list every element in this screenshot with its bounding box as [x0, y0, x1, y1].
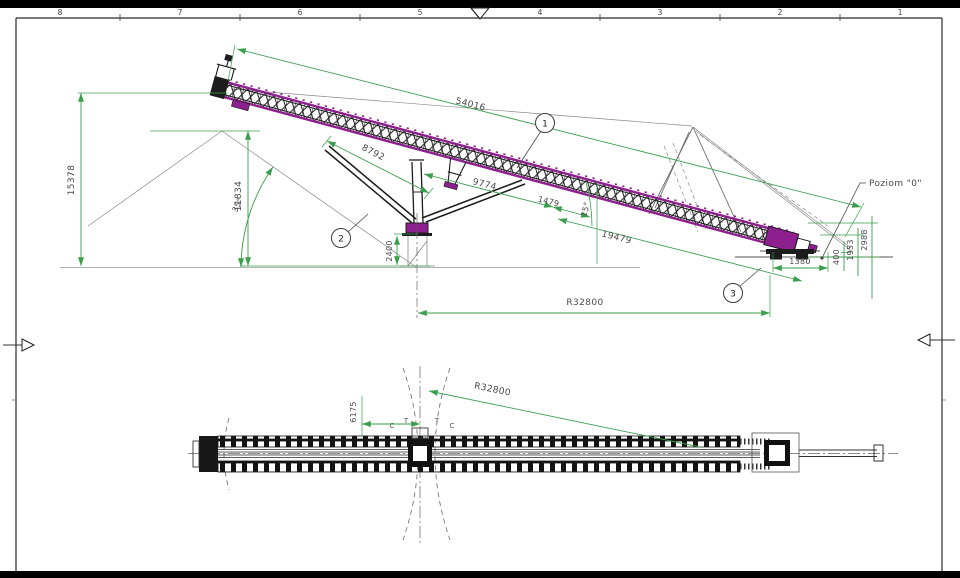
cad-drawing-sheet: 8 7 6 5 4 3 2 1: [0, 0, 960, 578]
underslung-frame: [443, 158, 466, 190]
boom-top-chord-inner: [223, 84, 798, 239]
boom-bottom-chord: [220, 96, 795, 251]
ruler-label: 3: [658, 8, 663, 17]
dim-text-2400: 2400: [385, 240, 394, 262]
dim-text-6175: 6175: [349, 401, 358, 423]
center-mark-right: [918, 334, 955, 346]
top-black-strip: [0, 0, 960, 8]
plan-mark: T: [434, 417, 440, 425]
conveyor-drawing: 8 7 6 5 4 3 2 1: [0, 0, 960, 578]
plan-mark: C: [450, 422, 455, 430]
ruler-label: 1: [898, 8, 903, 17]
plan-truss-band-top: [218, 436, 740, 447]
level-note: Poziom "0": [820, 179, 922, 260]
ruler-label: 2: [778, 8, 783, 17]
dim-text-2988: 2988: [860, 229, 869, 251]
dim-text-boom-length: 54016: [454, 96, 486, 113]
balloon-3-text: 3: [730, 290, 736, 300]
balloon-2-text: 2: [338, 235, 344, 245]
balloon-3-leader: [739, 268, 761, 287]
center-mark-left: [3, 339, 34, 351]
balloon-1-text: 1: [542, 120, 548, 130]
plan-head-pulley-inner: [769, 445, 785, 461]
plan-truss-band-bottom: [218, 461, 740, 472]
plan-tail-frame: [193, 441, 199, 467]
pivot-pedestal: [400, 213, 435, 318]
ruler-label: 6: [298, 8, 303, 17]
dim-text-1953: 1953: [846, 239, 855, 261]
angle-arc-35: [241, 167, 273, 267]
ruler-label: 5: [418, 8, 423, 17]
dim-text-8792: 8792: [360, 143, 386, 163]
ruler-label: 4: [538, 8, 543, 17]
level-note-point: [820, 256, 823, 259]
plan-shaft-cap: [874, 445, 883, 461]
border-lines: [16, 18, 942, 571]
plan-tail-block: [199, 436, 218, 472]
ground-lines: [60, 257, 893, 268]
center-mark-top: [471, 8, 489, 19]
dim-text-radius-side: R32800: [566, 298, 603, 308]
dim-text-radius-plan: R32800: [473, 381, 512, 398]
dimension-texts-side: 54016 8792 9774 1479 19479 R32800 15378 …: [67, 96, 869, 308]
sheet-frame: [0, 0, 960, 578]
ruler-label: 7: [178, 8, 183, 17]
dim-text-9774: 9774: [471, 177, 497, 193]
angle-text-15: 15°: [579, 201, 592, 218]
boom-bottom-chord-inner: [220, 94, 795, 249]
tail-sheave: [224, 54, 232, 62]
plan-view: C T T C 6175 R32800: [188, 366, 898, 546]
dim-text-1380: 1380: [789, 257, 811, 266]
bottom-black-strip: [0, 571, 960, 578]
balloon-2-leader: [348, 214, 368, 232]
boom-truss: [202, 52, 826, 284]
dim-text-400: 400: [832, 249, 841, 265]
dim-text-15378: 15378: [67, 165, 77, 196]
dim-text-1479: 1479: [537, 195, 560, 209]
boom-top-chord: [224, 81, 799, 236]
plan-pivot-inner: [413, 446, 427, 461]
ruler-label: 8: [58, 8, 63, 17]
level-note-text: Poziom "0": [869, 179, 922, 189]
plan-mark: C: [390, 422, 395, 430]
belt-idlers: [228, 80, 794, 232]
head-drive-block: [764, 226, 799, 252]
dim-text-19479: 19479: [600, 229, 632, 246]
pedestal-lines: [400, 236, 435, 266]
